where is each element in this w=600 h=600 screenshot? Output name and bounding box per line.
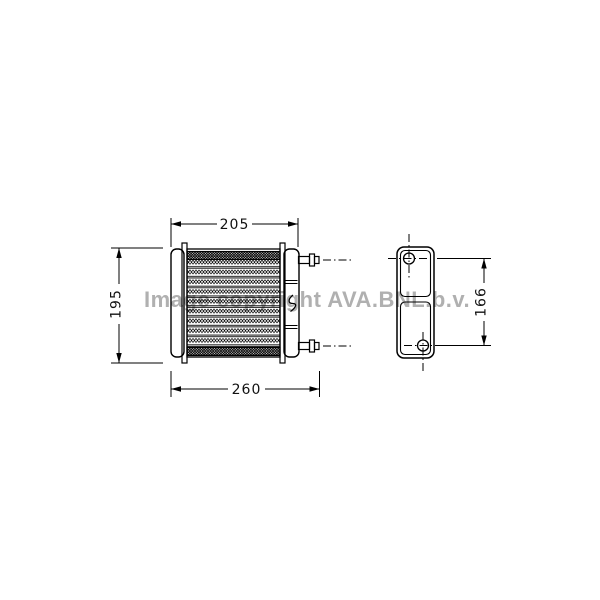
core-bottom-header [187,348,280,356]
core-fins [187,260,280,348]
dimension-label-205: 205 [220,217,250,233]
dimension-label-195: 195 [109,289,125,319]
dimension-label-260: 260 [232,382,262,398]
diagram-canvas: Image copyright AVA.BNL.b.v. [0,0,600,600]
core-top-header [187,252,280,260]
dimension-label-166: 166 [474,287,490,317]
technical-drawing: Image copyright AVA.BNL.b.v. [0,0,600,600]
